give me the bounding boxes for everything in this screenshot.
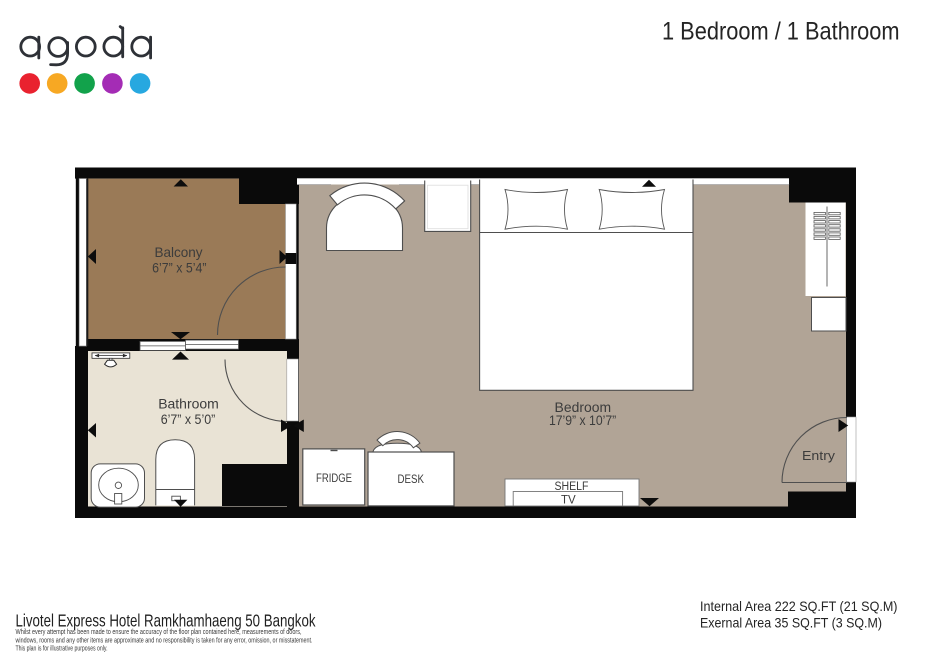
svg-text:TV: TV xyxy=(561,495,576,507)
svg-text:FRIDGE: FRIDGE xyxy=(316,471,352,485)
svg-text:Whilst every attempt has been: Whilst every attempt has been made to en… xyxy=(16,629,302,636)
svg-text:1 Bedroom / 1 Bathroom: 1 Bedroom / 1 Bathroom xyxy=(662,18,900,46)
svg-text:Entry: Entry xyxy=(802,448,836,463)
svg-text:17’9” x 10’7”: 17’9” x 10’7” xyxy=(549,412,617,428)
svg-text:windows, rooms and any other i: windows, rooms and any other items are a… xyxy=(15,637,313,644)
svg-text:Exernal Area 35 SQ.FT (3 SQ.M): Exernal Area 35 SQ.FT (3 SQ.M) xyxy=(700,615,882,631)
svg-text:This plan is for illustrative: This plan is for illustrative purposes o… xyxy=(16,646,108,653)
svg-text:6’7” x 5’0”: 6’7” x 5’0” xyxy=(161,411,216,427)
svg-text:Bathroom: Bathroom xyxy=(158,396,219,412)
svg-text:Livotel Express Hotel Ramkhamh: Livotel Express Hotel Ramkhamhaeng 50 Ba… xyxy=(16,610,316,630)
svg-text:SHELF: SHELF xyxy=(555,481,589,493)
svg-text:Balcony: Balcony xyxy=(154,244,202,260)
svg-text:6’7” x 5’4”: 6’7” x 5’4” xyxy=(152,260,207,276)
svg-text:Internal Area 222 SQ.FT (21 SQ: Internal Area 222 SQ.FT (21 SQ.M) xyxy=(700,598,898,614)
svg-text:DESK: DESK xyxy=(397,472,424,486)
